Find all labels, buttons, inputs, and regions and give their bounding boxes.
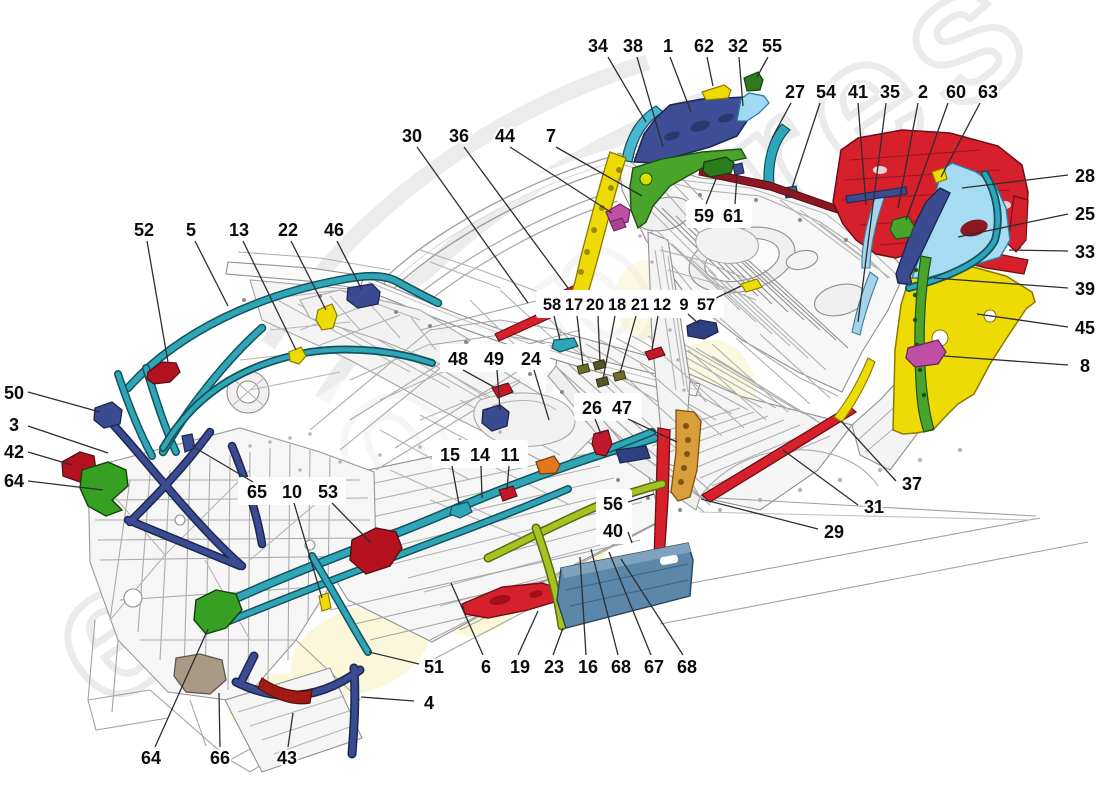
- svg-text:60: 60: [946, 82, 966, 102]
- svg-text:65: 65: [247, 482, 267, 502]
- svg-text:48: 48: [448, 349, 468, 369]
- svg-text:17: 17: [565, 296, 583, 314]
- svg-text:56: 56: [603, 494, 623, 514]
- svg-text:55: 55: [762, 36, 782, 56]
- svg-text:33: 33: [1075, 242, 1095, 262]
- svg-text:67: 67: [644, 657, 664, 677]
- svg-text:61: 61: [723, 206, 743, 226]
- svg-text:30: 30: [402, 126, 422, 146]
- svg-text:68: 68: [611, 657, 631, 677]
- svg-text:26: 26: [582, 398, 602, 418]
- svg-text:11: 11: [500, 445, 519, 465]
- svg-text:4: 4: [424, 693, 434, 713]
- svg-text:68: 68: [677, 657, 697, 677]
- svg-text:12: 12: [653, 296, 671, 314]
- svg-text:53: 53: [318, 482, 338, 502]
- svg-text:34: 34: [588, 36, 608, 56]
- svg-text:5: 5: [186, 220, 196, 240]
- svg-text:19: 19: [510, 657, 530, 677]
- svg-text:62: 62: [694, 36, 714, 56]
- svg-text:16: 16: [578, 657, 598, 677]
- svg-text:41: 41: [848, 82, 868, 102]
- svg-text:50: 50: [4, 383, 24, 403]
- svg-text:54: 54: [816, 82, 836, 102]
- svg-text:57: 57: [697, 296, 715, 314]
- svg-text:29: 29: [824, 522, 844, 542]
- svg-text:9: 9: [679, 296, 688, 314]
- svg-text:20: 20: [586, 296, 604, 314]
- svg-text:10: 10: [282, 482, 302, 502]
- svg-text:58: 58: [543, 296, 561, 314]
- svg-text:32: 32: [728, 36, 748, 56]
- svg-text:6: 6: [481, 657, 491, 677]
- svg-text:3: 3: [9, 415, 19, 435]
- svg-text:15: 15: [440, 445, 460, 465]
- svg-text:13: 13: [229, 220, 249, 240]
- svg-text:44: 44: [495, 126, 515, 146]
- svg-text:25: 25: [1075, 204, 1095, 224]
- svg-text:38: 38: [623, 36, 643, 56]
- svg-text:7: 7: [546, 126, 556, 146]
- svg-text:18: 18: [608, 296, 626, 314]
- svg-text:24: 24: [521, 349, 541, 369]
- svg-text:45: 45: [1075, 318, 1095, 338]
- svg-text:66: 66: [210, 748, 230, 768]
- svg-text:37: 37: [902, 474, 922, 494]
- svg-text:46: 46: [324, 220, 344, 240]
- svg-text:21: 21: [631, 296, 649, 314]
- svg-text:47: 47: [612, 398, 632, 418]
- svg-text:64: 64: [141, 748, 161, 768]
- svg-text:28: 28: [1075, 166, 1095, 186]
- svg-text:49: 49: [484, 349, 504, 369]
- svg-text:42: 42: [4, 442, 24, 462]
- svg-text:39: 39: [1075, 279, 1095, 299]
- svg-text:35: 35: [880, 82, 900, 102]
- svg-text:8: 8: [1080, 356, 1090, 376]
- svg-text:14: 14: [470, 445, 490, 465]
- svg-text:40: 40: [603, 521, 623, 541]
- svg-text:52: 52: [134, 220, 154, 240]
- svg-text:23: 23: [544, 657, 564, 677]
- svg-text:31: 31: [864, 497, 884, 517]
- svg-text:27: 27: [785, 82, 805, 102]
- svg-text:59: 59: [694, 206, 714, 226]
- svg-text:2: 2: [918, 82, 928, 102]
- svg-text:1: 1: [663, 36, 673, 56]
- svg-text:22: 22: [278, 220, 298, 240]
- svg-text:64: 64: [4, 471, 24, 491]
- svg-text:36: 36: [449, 126, 469, 146]
- svg-text:51: 51: [424, 657, 444, 677]
- svg-text:63: 63: [978, 82, 998, 102]
- svg-text:43: 43: [277, 748, 297, 768]
